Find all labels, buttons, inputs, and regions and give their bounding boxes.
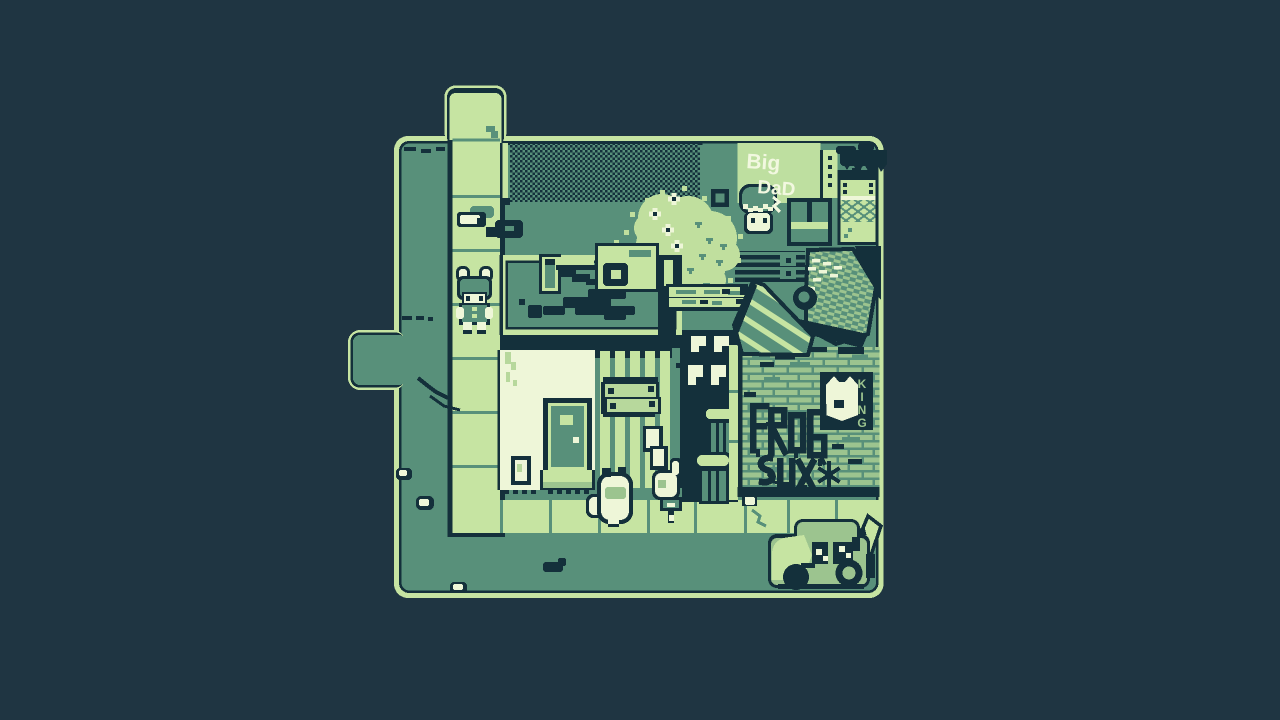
- svg-text:Big: Big: [746, 150, 781, 175]
- svg-text:I: I: [860, 390, 863, 404]
- svg-text:DaD: DaD: [757, 177, 796, 201]
- svg-text:G: G: [857, 416, 866, 430]
- svg-text:N: N: [858, 403, 867, 417]
- svg-text:K: K: [858, 377, 867, 391]
